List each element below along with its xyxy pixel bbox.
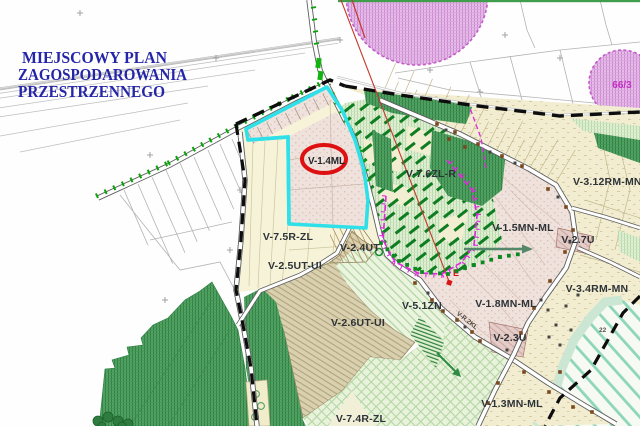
svg-text:V-1.3MN-ML: V-1.3MN-ML	[481, 398, 543, 410]
svg-text:22: 22	[599, 327, 607, 334]
svg-text:V-1.4ML: V-1.4ML	[308, 155, 346, 167]
svg-text:V-2.5UT-UI: V-2.5UT-UI	[268, 260, 322, 272]
svg-text:V-2.4UT: V-2.4UT	[340, 242, 380, 254]
svg-text:V-1.8MN-ML: V-1.8MN-ML	[475, 298, 537, 310]
svg-text:V-2.3U: V-2.3U	[493, 332, 526, 344]
svg-text:V-1.5MN-ML: V-1.5MN-ML	[492, 222, 554, 234]
svg-text:PRZESTRZENNEGO: PRZESTRZENNEGO	[18, 82, 165, 101]
svg-text:V-2.6UT-UI: V-2.6UT-UI	[331, 317, 385, 329]
svg-text:66/3: 66/3	[612, 80, 632, 91]
svg-text:V-2.7U: V-2.7U	[561, 234, 594, 246]
svg-text:V-7.5R-ZL: V-7.5R-ZL	[263, 231, 314, 243]
svg-text:V-3.12RM-MN: V-3.12RM-MN	[573, 176, 640, 188]
svg-text:V-3.4RM-MN: V-3.4RM-MN	[566, 283, 629, 295]
svg-text:V-5.1ZN: V-5.1ZN	[402, 300, 442, 312]
svg-text:V-7.6ZL-R: V-7.6ZL-R	[406, 168, 456, 180]
svg-text:V-7.4R-ZL: V-7.4R-ZL	[336, 413, 387, 425]
